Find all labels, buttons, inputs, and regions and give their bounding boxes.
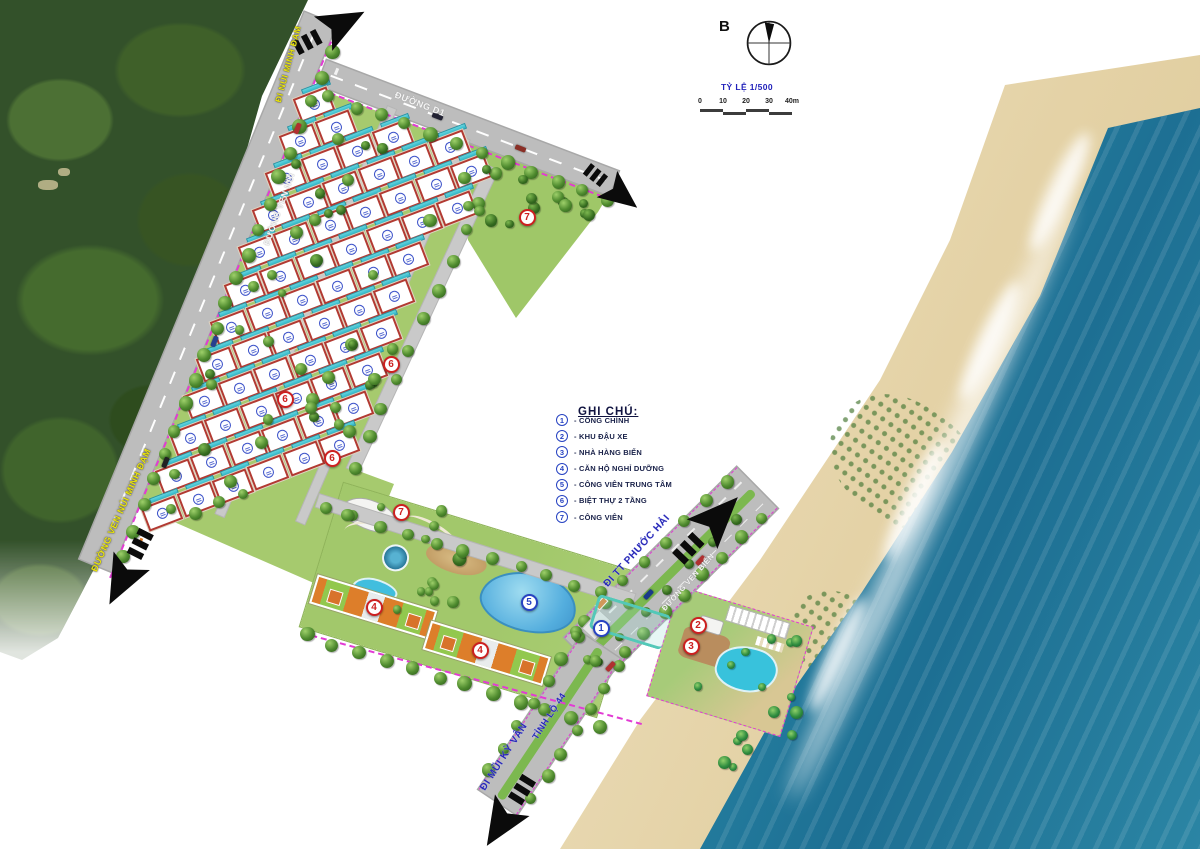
legend-item-number: 7 [556, 511, 568, 523]
legend-item: 2- KHU ĐẬU XE [556, 430, 672, 442]
scalebar-segment [700, 109, 723, 112]
scalebar-tick-label: 30 [765, 98, 773, 105]
map-marker-6: 6 [324, 450, 341, 467]
map-marker-4: 4 [366, 599, 383, 616]
legend-item: 3- NHÀ HÀNG BIỂN [556, 446, 672, 458]
legend-item-number: 3 [556, 446, 568, 458]
scale-ratio-label: TỶ LỆ 1/500 [702, 82, 792, 92]
legend-item-label: - BIỆT THỰ 2 TẦNG [574, 496, 647, 505]
map-marker-7: 7 [393, 504, 410, 521]
legend-item-label: - KHU ĐẬU XE [574, 432, 628, 441]
map-marker-3: 3 [683, 638, 700, 655]
scalebar-segment [723, 112, 746, 115]
legend-item-label: - NHÀ HÀNG BIỂN [574, 448, 642, 457]
scalebar-tick-label: 20 [742, 98, 750, 105]
legend-item-number: 5 [556, 479, 568, 491]
north-label: B [719, 18, 730, 35]
legend-item-label: - CỔNG CHÍNH [574, 416, 629, 425]
legend-item: 6- BIỆT THỰ 2 TẦNG [556, 495, 672, 507]
map-marker-6: 6 [383, 356, 400, 373]
map-marker-1: 1 [593, 620, 610, 637]
scalebar-tick-label: 10 [719, 98, 727, 105]
scalebar-segment [769, 112, 792, 115]
legend-item: 1- CỔNG CHÍNH [556, 414, 672, 426]
map-marker-4: 4 [472, 642, 489, 659]
legend-item: 4- CĂN HỘ NGHỈ DƯỠNG [556, 463, 672, 475]
legend-items: 1- CỔNG CHÍNH2- KHU ĐẬU XE3- NHÀ HÀNG BI… [556, 414, 672, 527]
legend-item-label: - CĂN HỘ NGHỈ DƯỠNG [574, 464, 664, 473]
scalebar-tick-label: 40m [785, 98, 799, 105]
legend-item-label: - CÔNG VIÊN TRUNG TÂM [574, 480, 672, 489]
map-marker-5: 5 [521, 594, 538, 611]
legend-item-number: 4 [556, 463, 568, 475]
legend-item-number: 6 [556, 495, 568, 507]
legend-item-number: 1 [556, 414, 568, 426]
legend-item: 7- CÔNG VIÊN [556, 511, 672, 523]
scale-bar: 010203040m [700, 98, 800, 118]
resort-master-plan-map: ĐI NÚI MINH ĐẠMĐƯỜNG VEN NÚIĐƯỜNG VEN NÚ… [0, 0, 1200, 849]
legend-item: 5- CÔNG VIÊN TRUNG TÂM [556, 479, 672, 491]
map-marker-7: 7 [519, 209, 536, 226]
compass-icon [745, 19, 793, 67]
legend-item-number: 2 [556, 430, 568, 442]
scalebar-tick-label: 0 [698, 98, 702, 105]
map-marker-6: 6 [277, 391, 294, 408]
scalebar-segment [746, 109, 769, 112]
legend-item-label: - CÔNG VIÊN [574, 513, 623, 522]
map-marker-2: 2 [690, 617, 707, 634]
